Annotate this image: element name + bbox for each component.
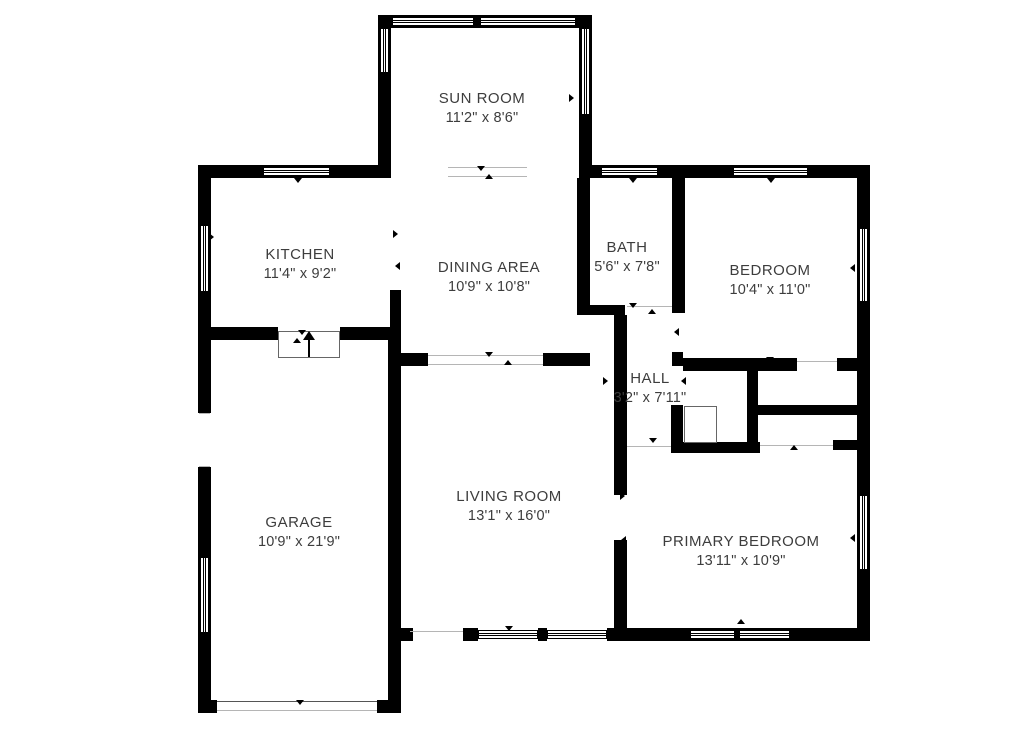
window	[480, 17, 576, 26]
door-arrow	[629, 303, 637, 308]
wall-segment	[614, 540, 627, 628]
room-dimensions: 13'1" x 16'0"	[456, 508, 562, 524]
closet-fixture	[684, 406, 717, 443]
room-label-primary-bedroom: PRIMARY BEDROOM 13'11" x 10'9"	[663, 533, 820, 569]
wall-segment	[538, 628, 547, 641]
door-arrow	[294, 178, 302, 183]
room-label-sun-room: SUN ROOM 11'2" x 8'6"	[439, 90, 526, 126]
door-arrow	[504, 360, 512, 365]
opening-line	[448, 167, 527, 168]
window	[200, 225, 209, 292]
room-label-bedroom: BEDROOM 10'4" x 11'0"	[729, 262, 810, 298]
door-arrow	[505, 626, 513, 631]
room-dimensions: 11'2" x 8'6"	[439, 110, 526, 126]
room-name: SUN ROOM	[439, 90, 526, 107]
wall-segment	[401, 353, 428, 366]
door-arrow	[674, 328, 679, 336]
door-arrow	[298, 330, 306, 335]
door-arrow	[648, 309, 656, 314]
window	[581, 28, 590, 115]
room-label-dining-area: DINING AREA 10'9" x 10'8"	[438, 259, 540, 295]
door-arrow	[766, 357, 774, 362]
door-arrow	[205, 515, 210, 523]
opening-line	[428, 364, 543, 365]
opening-line	[199, 413, 210, 414]
room-name: GARAGE	[258, 514, 340, 531]
window	[478, 630, 538, 639]
door-arrow	[477, 166, 485, 171]
stair-arrow-stem	[308, 340, 310, 357]
room-label-living-room: LIVING ROOM 13'1" x 16'0"	[456, 488, 562, 524]
opening-line	[797, 361, 837, 362]
opening-line	[627, 446, 671, 447]
window	[200, 557, 209, 633]
door-arrow	[629, 178, 637, 183]
window	[263, 167, 330, 176]
wall-segment	[388, 628, 413, 641]
window	[859, 228, 868, 302]
wall-segment	[833, 440, 862, 450]
door-arrow	[850, 264, 855, 272]
garage-door-line	[217, 710, 377, 711]
room-label-hall: HALL 3'2" x 7'11"	[614, 370, 687, 406]
window	[859, 495, 868, 570]
window	[392, 17, 474, 26]
floor-plan: SUN ROOM 11'2" x 8'6" KITCHEN 11'4" x 9'…	[0, 0, 1024, 746]
door-arrow	[790, 445, 798, 450]
room-label-garage: GARAGE 10'9" x 21'9"	[258, 514, 340, 550]
opening-line	[199, 466, 210, 467]
room-name: DINING AREA	[438, 259, 540, 276]
door-arrow	[395, 262, 400, 270]
wall-segment	[543, 353, 590, 366]
door-arrow	[485, 174, 493, 179]
room-name: BEDROOM	[729, 262, 810, 279]
wall-segment	[614, 453, 627, 495]
wall-segment	[463, 628, 478, 641]
stair-up-marker	[293, 338, 301, 343]
wall-segment	[577, 305, 625, 315]
door-arrow	[393, 230, 398, 238]
wall-segment	[672, 178, 685, 313]
window	[547, 630, 607, 639]
room-dimensions: 10'9" x 21'9"	[258, 534, 340, 550]
room-dimensions: 5'6" x 7'8"	[594, 259, 660, 275]
door-arrow	[621, 536, 626, 544]
door-arrow	[850, 534, 855, 542]
room-name: BATH	[594, 239, 660, 256]
door-arrow	[603, 377, 608, 385]
door-opening	[198, 413, 211, 467]
room-name: KITCHEN	[264, 246, 337, 263]
room-name: LIVING ROOM	[456, 488, 562, 505]
door-arrow	[649, 438, 657, 443]
wall-segment	[753, 405, 860, 415]
door-arrow	[767, 178, 775, 183]
opening-line	[410, 631, 463, 632]
door-arrow	[485, 352, 493, 357]
wall-segment	[340, 327, 401, 340]
window	[601, 167, 658, 176]
room-name: HALL	[614, 370, 687, 387]
door-arrow	[620, 492, 625, 500]
room-dimensions: 3'2" x 7'11"	[614, 390, 687, 406]
room-dimensions: 11'4" x 9'2"	[264, 266, 337, 282]
room-label-bath: BATH 5'6" x 7'8"	[594, 239, 660, 275]
door-arrow	[209, 233, 214, 241]
window	[733, 167, 808, 176]
room-dimensions: 10'9" x 10'8"	[438, 279, 540, 295]
window	[739, 630, 790, 639]
door-arrow	[739, 444, 747, 449]
wall-segment	[683, 358, 797, 371]
window	[690, 630, 735, 639]
room-name: PRIMARY BEDROOM	[663, 533, 820, 550]
wall-segment	[211, 327, 278, 340]
room-dimensions: 13'11" x 10'9"	[663, 553, 820, 569]
door-arrow	[384, 93, 389, 101]
wall-segment	[837, 358, 862, 371]
door-arrow	[569, 94, 574, 102]
wall-segment	[672, 352, 683, 366]
wall-segment	[577, 178, 590, 315]
room-label-kitchen: KITCHEN 11'4" x 9'2"	[264, 246, 337, 282]
door-arrow	[296, 700, 304, 705]
door-arrow	[737, 619, 745, 624]
wall-segment	[388, 327, 401, 713]
room-dimensions: 10'4" x 11'0"	[729, 282, 810, 298]
window	[380, 28, 389, 73]
